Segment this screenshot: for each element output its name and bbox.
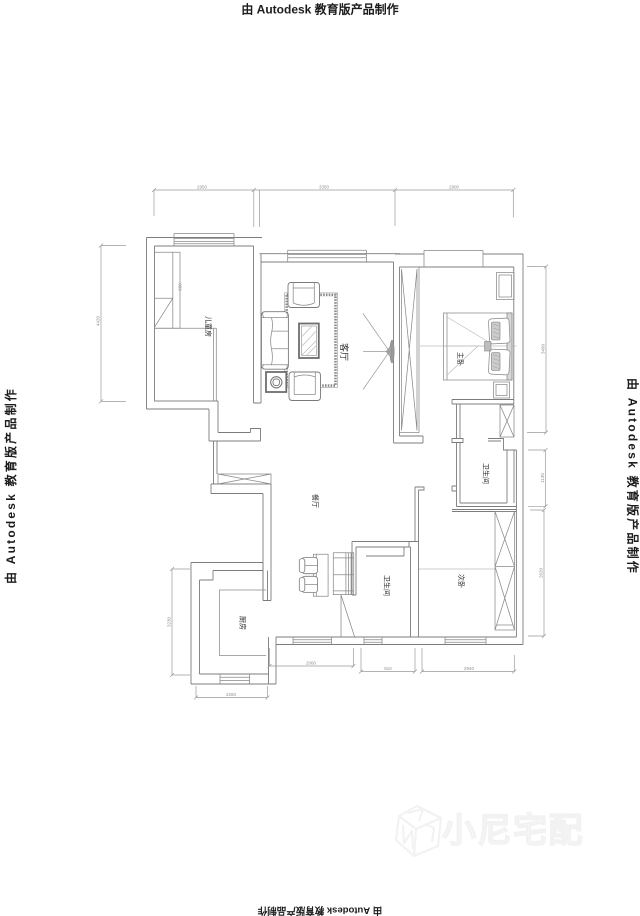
svg-text:儿童房: 儿童房 <box>204 316 213 337</box>
svg-text:2620: 2620 <box>539 567 544 578</box>
svg-text:小尼宅配: 小尼宅配 <box>442 811 584 850</box>
svg-text:由 Autodesk 教育版产品制作: 由 Autodesk 教育版产品制作 <box>3 387 18 584</box>
svg-text:2060: 2060 <box>306 661 317 666</box>
svg-text:次卧: 次卧 <box>457 574 466 588</box>
svg-text:2950: 2950 <box>197 185 208 190</box>
svg-text:810: 810 <box>384 666 392 671</box>
svg-text:600: 600 <box>178 283 183 291</box>
svg-text:客厅: 客厅 <box>339 343 350 361</box>
svg-text:1130: 1130 <box>540 473 545 483</box>
svg-text:由 Autodesk 教育版产品制作: 由 Autodesk 教育版产品制作 <box>241 2 398 17</box>
svg-text:4420: 4420 <box>96 315 101 326</box>
svg-text:2900: 2900 <box>449 185 460 190</box>
svg-text:2260: 2260 <box>226 692 237 697</box>
svg-text:厨房: 厨房 <box>239 616 248 630</box>
svg-text:3350: 3350 <box>319 185 330 190</box>
svg-text:由 Autodesk 教育版产品制作: 由 Autodesk 教育版产品制作 <box>257 905 382 916</box>
svg-text:主卧: 主卧 <box>456 352 465 366</box>
svg-text:卫生间: 卫生间 <box>383 575 392 596</box>
svg-text:2940: 2940 <box>464 666 475 671</box>
svg-text:餐厅: 餐厅 <box>311 494 320 508</box>
svg-text:由 Autodesk 教育版产品制作: 由 Autodesk 教育版产品制作 <box>626 378 640 575</box>
svg-text:3490: 3490 <box>541 343 546 354</box>
svg-text:3230: 3230 <box>167 616 172 627</box>
svg-text:卫生间: 卫生间 <box>482 463 491 484</box>
